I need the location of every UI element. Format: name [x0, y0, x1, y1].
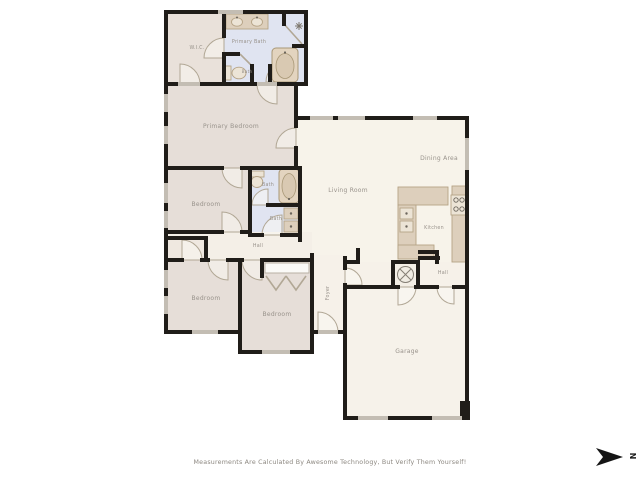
floorplan-page: W.I.C. Primary Bath Bath Primary Bedroom…	[0, 0, 640, 480]
compass-north-arrow-icon	[596, 448, 623, 466]
room-fills	[166, 12, 467, 418]
hall-left-label: Hall	[253, 243, 263, 249]
kitchen-counter	[398, 187, 448, 205]
bath-lower-label: Bath	[270, 216, 282, 222]
floorplan-canvas: W.I.C. Primary Bath Bath Primary Bedroom…	[0, 0, 640, 480]
primary-bedroom-label: Primary Bedroom	[203, 123, 259, 130]
bathtub-basin	[282, 174, 296, 199]
bathtub-basin	[276, 54, 294, 79]
dining-area-label: Dining Area	[420, 155, 458, 162]
faucet-icon	[288, 198, 290, 200]
stove-icon	[451, 195, 467, 215]
bedroom-mid-label: Bedroom	[192, 201, 221, 208]
faucet-icon	[236, 17, 238, 19]
primary-bath-label: Primary Bath	[232, 39, 266, 45]
north-label: N	[628, 453, 637, 460]
faucet-icon	[290, 212, 292, 214]
bedroom-left-label: Bedroom	[192, 295, 221, 302]
bedroom-center-label: Bedroom	[263, 311, 292, 318]
compass: N	[596, 448, 637, 466]
kitchen-label: Kitchen	[424, 225, 444, 231]
faucet-icon	[405, 225, 407, 227]
wic-label: W.I.C.	[189, 45, 204, 51]
sink-icon	[252, 18, 263, 26]
hall-right-label: Hall	[438, 270, 448, 276]
foyer-label: Foyer	[325, 286, 331, 301]
living-room-label: Living Room	[328, 187, 368, 194]
faucet-icon	[284, 51, 286, 53]
bath-top-label: Bath	[242, 69, 253, 74]
disclaimer-text: Measurements Are Calculated By Awesome T…	[194, 459, 467, 466]
garage-label: Garage	[395, 348, 419, 355]
sink-icon	[232, 18, 243, 26]
faucet-icon	[290, 225, 292, 227]
bath-mid-label: Bath	[262, 182, 274, 188]
faucet-icon	[256, 17, 258, 19]
faucet-icon	[405, 212, 407, 214]
closet-shelf	[265, 263, 309, 273]
